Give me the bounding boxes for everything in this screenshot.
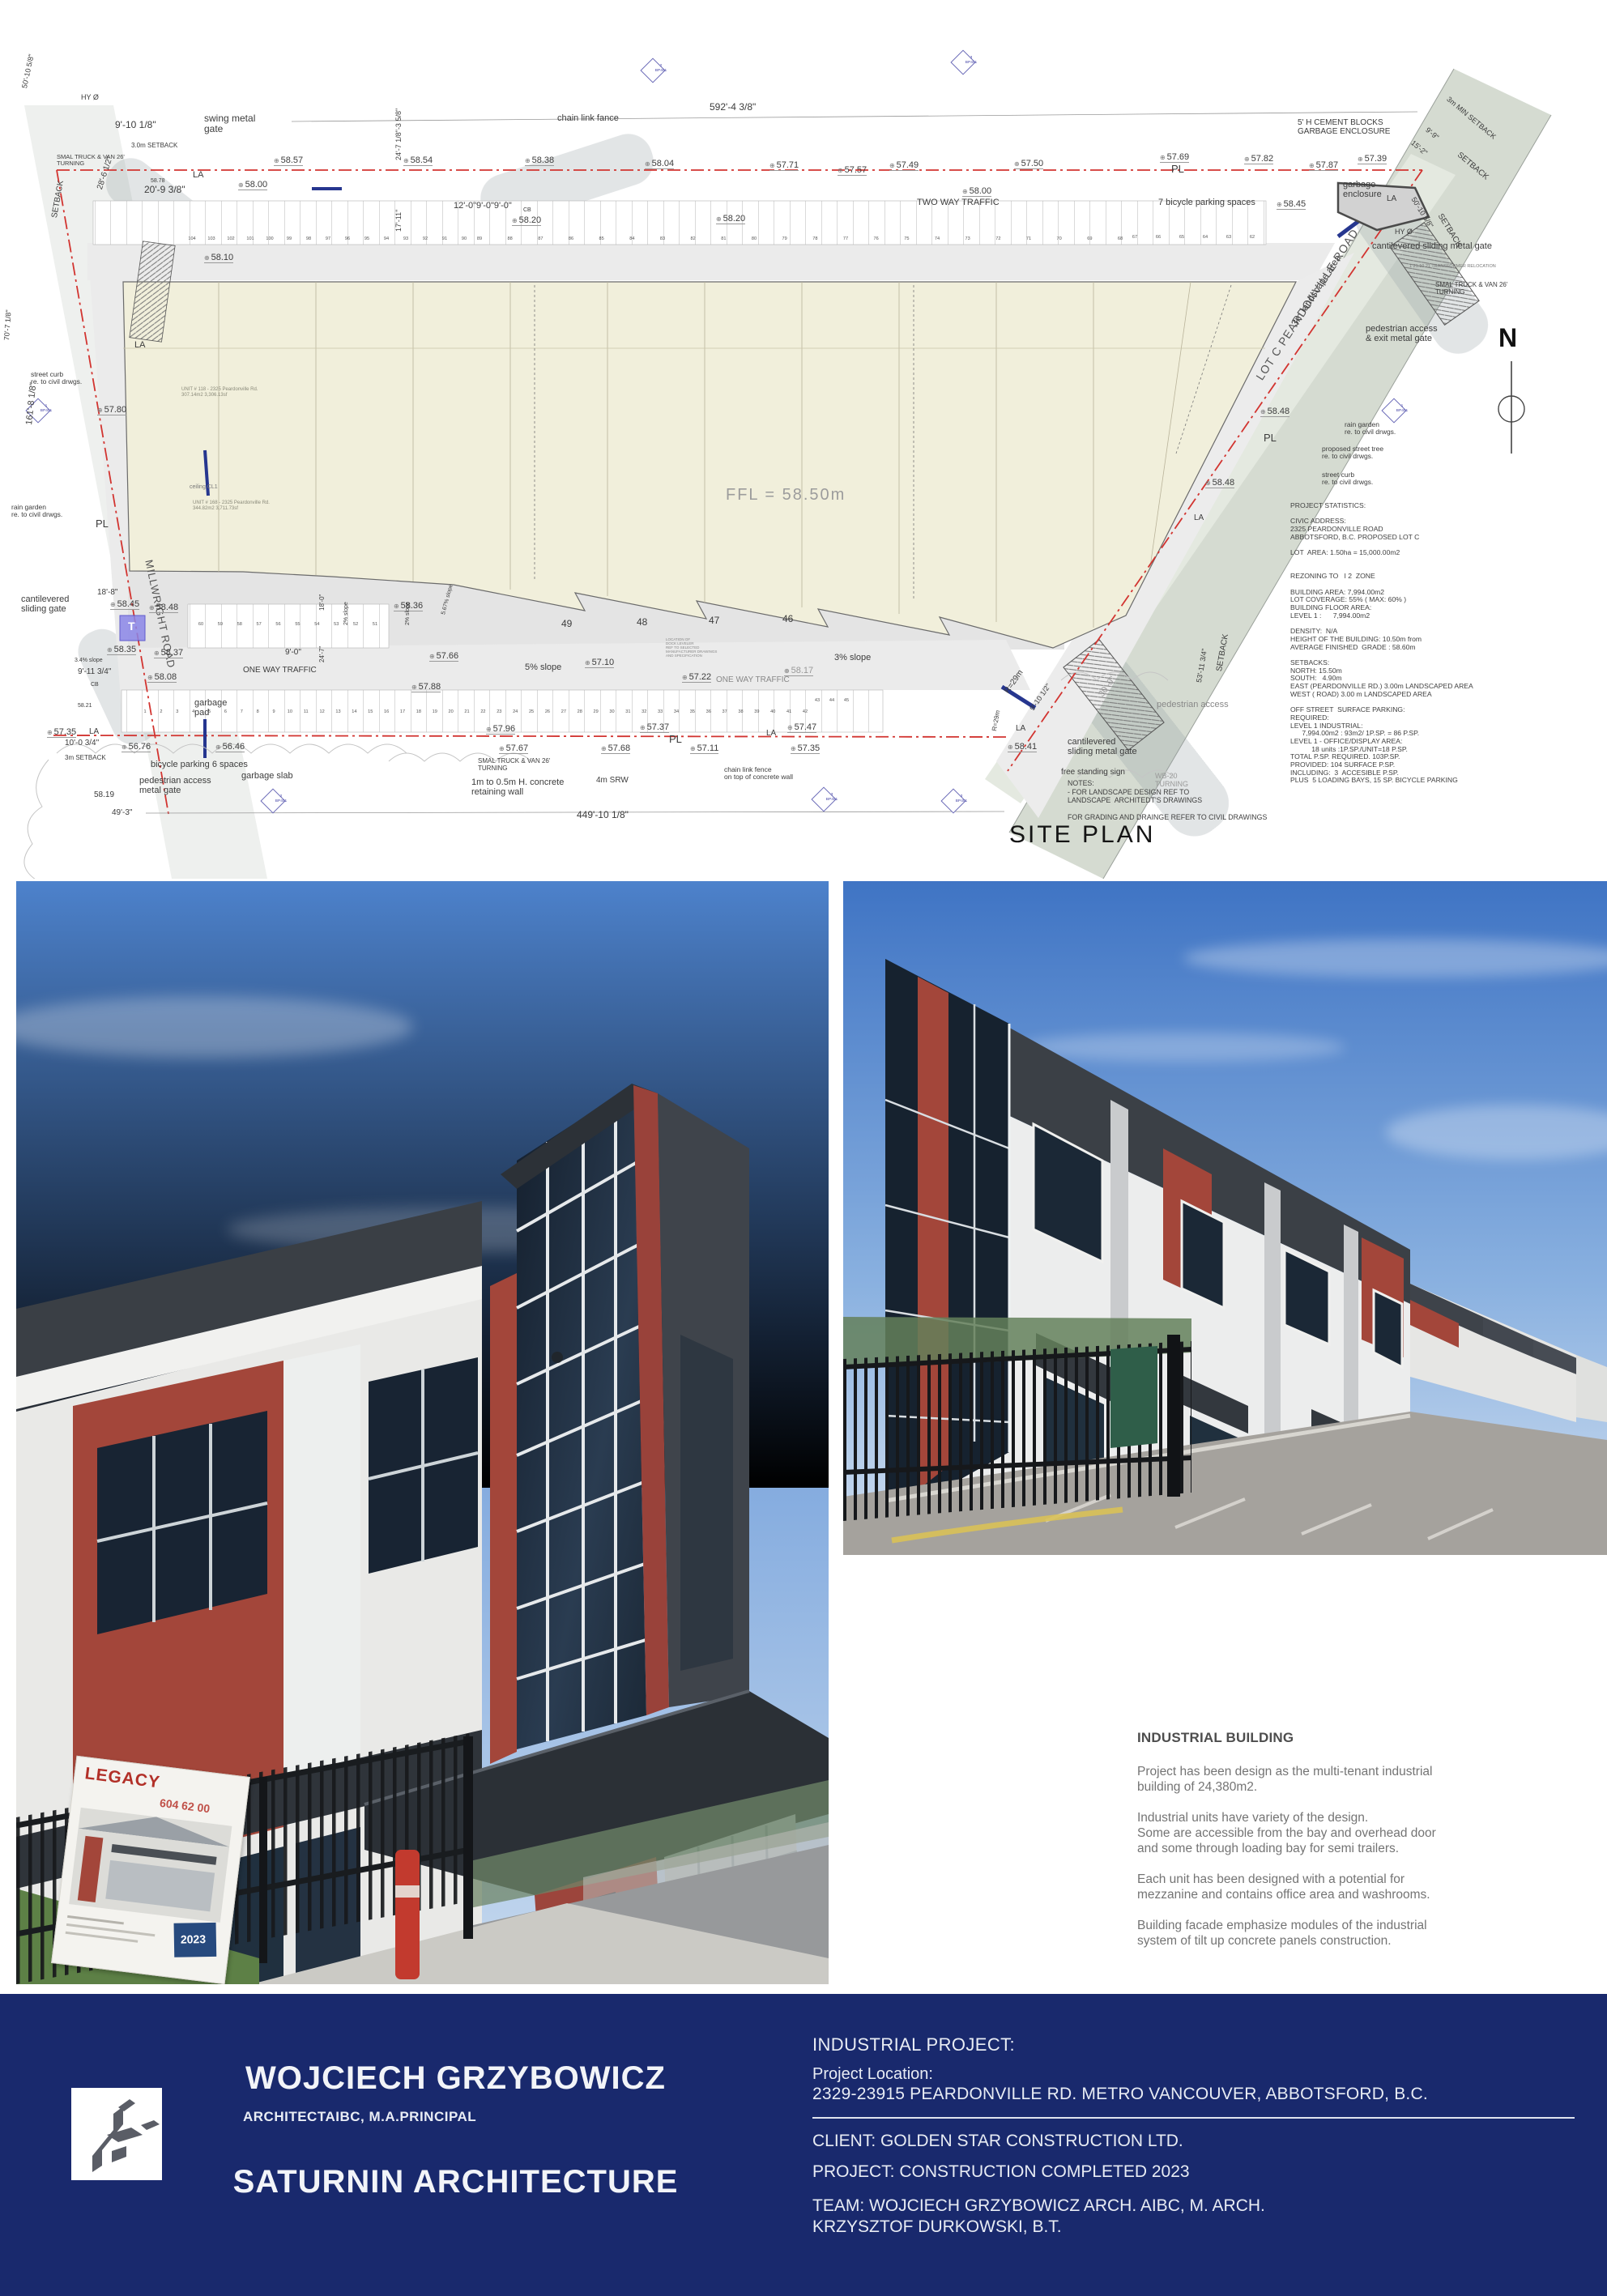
notes-line [1068, 805, 1267, 814]
parking-stall-number: 30 [609, 709, 614, 714]
parking-stall-number: 9 [272, 709, 275, 714]
parking-stall-number: 60 [198, 622, 203, 627]
plan-annotation: 18'-8" [97, 588, 117, 597]
plan-annotation: 58.54 [403, 155, 433, 166]
plan-annotation: ceiling CL1 [190, 484, 218, 491]
plan-annotation: 24'-7 1/8"-3 5/8" [395, 109, 403, 160]
parking-stall-number: 82 [691, 236, 696, 241]
legacy-banner: LEGACY 604 62 00 2023 [51, 1756, 250, 1984]
plan-annotation: garbage enclosure [1343, 180, 1382, 199]
parking-stall-number: 45 [844, 698, 849, 703]
plan-annotation: 57.50 [1014, 159, 1043, 169]
plan-annotation: 58.38 [525, 155, 554, 166]
plan-annotation: 57.57 [838, 165, 867, 176]
plan-annotation: 18'-0" [319, 594, 326, 611]
parking-stall-number: 8 [257, 709, 259, 714]
description-paragraphs: Project has been design as the multi-ten… [1137, 1764, 1550, 1949]
parking-stall-number: 59 [218, 622, 223, 627]
parking-stall-number: 81 [721, 236, 726, 241]
parking-stall-number: 67 [1132, 235, 1137, 240]
parking-stall-number: 52 [353, 622, 358, 627]
plan-annotation: 58.00 [962, 186, 991, 197]
parking-stall-number: 66 [1156, 235, 1161, 240]
parking-stall-number: 19 [433, 709, 437, 714]
plan-annotation: 57.35 [47, 727, 76, 738]
plan-annotation: 58.35 [107, 645, 136, 655]
plan-annotation: pedestrian access & exit metal gate [1366, 324, 1438, 343]
parking-stall-number: 18 [416, 709, 421, 714]
footer-project-line: PROJECT: CONSTRUCTION COMPLETED 2023 [812, 2162, 1190, 2182]
plan-annotation: 58.20 [512, 215, 541, 226]
footer-location-label: Project Location: [812, 2065, 933, 2084]
parking-stall-number: 65 [1179, 235, 1184, 240]
plan-annotation: 57.39 [1358, 154, 1387, 164]
plan-annotation: pedestrian access [1157, 700, 1229, 709]
parking-stall-number: 100 [266, 236, 273, 241]
notes-line: NOTES: [1068, 779, 1267, 788]
plan-annotation: 57.88 [411, 682, 441, 692]
footer-team-line1: TEAM: WOJCIECH GRZYBOWICZ ARCH. AIBC, M.… [812, 2196, 1265, 2216]
plan-annotation: 57.67 [499, 743, 528, 754]
parking-stall-number: 14 [352, 709, 356, 714]
plan-annotation: 46 [782, 614, 793, 624]
plan-annotation: 1m to 0.5m H. concrete retaining wall [471, 777, 564, 797]
plan-annotation: 58.21 [78, 703, 92, 709]
plan-annotation: LOCATION OF DOCK LEVELER REF TO SELECTED… [666, 638, 717, 658]
parking-stall-number: 12 [320, 709, 325, 714]
parking-stall-number: 58 [237, 622, 242, 627]
plan-annotation: 49'-3" [112, 808, 132, 817]
parking-stall-number: 57 [257, 622, 262, 627]
plan-annotation: cantilevered sliding metal gate [1068, 737, 1137, 756]
photo-building-row [843, 881, 1607, 1555]
parking-stall-number: 34 [674, 709, 679, 714]
parking-stall-number: 44 [829, 698, 834, 703]
parking-stall-number: 40 [770, 709, 775, 714]
drawing-reference-label: 3 BP401 [957, 56, 985, 66]
parking-stall-number: 23 [497, 709, 501, 714]
parking-stall-number: 33 [658, 709, 663, 714]
parking-stall-number: 3 [176, 709, 178, 714]
plan-annotation: 57.68 [601, 743, 630, 754]
plan-annotation: CB [523, 207, 531, 214]
plan-annotation: CB [91, 682, 99, 688]
banner-phone: 604 62 00 [159, 1796, 211, 1815]
plan-annotation: 58.04 [645, 159, 674, 169]
parking-stall-number: 2 [160, 709, 162, 714]
plan-annotation: pedestrian access metal gate [139, 776, 211, 795]
plan-annotation: rain garden re. to civil drwgs. [1345, 421, 1396, 437]
notes-line: FOR GRADING AND DRAINGE REFER TO CIVIL D… [1068, 813, 1267, 822]
statistics-line: PLUS 5 LOADING BAYS, 15 SP. BICYCLE PARK… [1290, 777, 1473, 785]
plan-annotation: 7 bicycle parking spaces [1158, 198, 1255, 207]
plan-annotation: rain garden re. to civil drwgs. [11, 504, 62, 519]
plan-annotation: 57.82 [1244, 154, 1273, 164]
drawing-reference-label: 2 BP401 [647, 64, 675, 74]
plan-annotation: PL [96, 518, 109, 530]
parking-stall-number: 80 [752, 236, 757, 241]
plan-annotation: SMAL TRUCK & VAN 26' TURNING [57, 154, 125, 168]
parking-stall-number: 54 [314, 622, 319, 627]
statistics-line: ABBOTSFORD, B.C. PROPOSED LOT C [1290, 534, 1473, 542]
statistics-line: AVERAGE FINISHED GRADE : 58.60m [1290, 644, 1473, 652]
parking-stall-number: 93 [403, 236, 408, 241]
plan-annotation: 3m SETBACK [65, 755, 106, 762]
parking-stall-number: 99 [287, 236, 292, 241]
plan-annotation: ONE WAY TRAFFIC [716, 675, 790, 684]
plan-annotation: 9'-10 1/8" [115, 120, 156, 130]
footer-location-value: 2329-23915 PEARDONVILLE RD. METRO VANCOU… [812, 2085, 1428, 2104]
plan-annotation: 57.35 [791, 743, 820, 754]
drawing-reference-label: 3 BP401 [818, 793, 846, 803]
plan-annotation: 17'-11" [395, 210, 403, 232]
statistics-line: LEVEL 1 : 7,994.00m2 [1290, 612, 1473, 620]
plan-annotation: 57.10 [585, 658, 614, 668]
parking-stall-number: 73 [965, 236, 970, 241]
architect-title: ARCHITECTAIBC, M.A.PRINCIPAL [243, 2109, 476, 2125]
plan-annotation: 58.48 [149, 603, 178, 613]
parking-stall-number: 39 [754, 709, 759, 714]
statistics-line: REZONING TO I 2 ZONE [1290, 573, 1473, 581]
parking-stall-number: 53 [334, 622, 339, 627]
statistics-line: LOT AREA: 1.50ha = 15,000.00m2 [1290, 549, 1473, 557]
plan-annotation: 58.00 [238, 180, 267, 190]
red-bollard [395, 1850, 420, 1979]
photo-right-art [843, 881, 1607, 1555]
parking-stall-number: 92 [423, 236, 428, 241]
north-arrow [1498, 361, 1524, 454]
plan-annotation: 57.47 [787, 722, 816, 733]
parking-stall-number: 70 [1057, 236, 1062, 241]
drawing-reference-label: 1 BP401 [32, 404, 60, 414]
plan-annotation: proposed street tree re. to civil drwgs. [1322, 445, 1383, 461]
plan-annotation: 58.17 [784, 666, 813, 676]
plan-annotation: 5' H CEMENT BLOCKS GARBAGE ENCLOSURE [1298, 118, 1390, 136]
plan-annotation: 58.10 [204, 253, 233, 263]
parking-stall-number: 102 [227, 236, 234, 241]
description-paragraph: Each unit has been designed with a poten… [1137, 1872, 1550, 1902]
notes-line: LANDSCAPE ARCHITEDT'S DRAWINGS [1068, 796, 1267, 805]
parking-stall-number: 41 [786, 709, 791, 714]
plan-annotation: 56.76 [121, 742, 151, 752]
description-paragraph: Industrial units have variety of the des… [1137, 1810, 1550, 1856]
footer-project-type: INDUSTRIAL PROJECT: [812, 2034, 1015, 2055]
plan-annotation: PL [669, 734, 682, 745]
plan-annotation: 3% slope [834, 653, 871, 662]
plan-annotation: 58.45 [110, 599, 139, 610]
parking-stall-number: 31 [625, 709, 630, 714]
parking-stall-number: 43 [815, 698, 820, 703]
parking-stall-number: 95 [364, 236, 369, 241]
plan-annotation: 58.48 [1205, 478, 1234, 488]
plan-annotation: LA [1016, 724, 1025, 733]
plan-annotation: 9'-11 3/4" [78, 667, 111, 676]
parking-stall-number: 32 [642, 709, 646, 714]
architect-name: WOJCIECH GRZYBOWICZ [113, 2060, 798, 2097]
parking-stall-number: 84 [629, 236, 634, 241]
plan-annotation: 47 [709, 616, 719, 626]
parking-stall-number: 56 [275, 622, 280, 627]
plan-annotation: LA [193, 170, 203, 180]
plan-annotation: FFL = 58.50m [726, 486, 846, 504]
footer-band: WOJCIECH GRZYBOWICZ ARCHITECTAIBC, M.A.P… [0, 1994, 1607, 2296]
plan-annotation: 57.11 [690, 743, 718, 754]
parking-stall-number: 83 [660, 236, 665, 241]
plan-annotation: 57.69 [1160, 152, 1189, 163]
plan-annotation: garbage pad [194, 698, 227, 718]
parking-stall-number: 79 [782, 236, 787, 241]
plan-annotation: cantilevered sliding gate [21, 594, 69, 614]
plan-annotation: 57.37 [640, 722, 669, 733]
plan-annotation: 58.41 [1008, 742, 1037, 752]
site-plan-section: HY Ø50'-10 5/8"9'-10 1/8"swing metal gat… [0, 0, 1607, 879]
parking-stall-number: 76 [874, 236, 879, 241]
plan-annotation: 592'-4 3/8" [710, 102, 756, 113]
parking-stall-number: 75 [904, 236, 909, 241]
plan-annotation: N [1498, 324, 1517, 352]
parking-stall-number: 72 [995, 236, 1000, 241]
plan-annotation: free standing sign [1061, 768, 1125, 777]
drawing-reference-label: 1 BP401 [1388, 404, 1416, 414]
parking-stall-number: 21 [464, 709, 469, 714]
plan-annotation: 57.49 [889, 160, 919, 171]
parking-stall-number: 69 [1087, 236, 1092, 241]
banner-image [69, 1808, 232, 1923]
drawing-reference-label: 2 BP401 [267, 794, 295, 804]
footer-team-line2: KRZYSZTOF DURKOWSKI, B.T. [812, 2217, 1062, 2237]
drawing-reference-label: 3 BP401 [948, 794, 975, 804]
plan-annotation: PL [1264, 432, 1277, 444]
plan-annotation: LA [134, 340, 145, 350]
plan-annotation: 2% slope [343, 602, 350, 625]
plan-annotation: 12'-0"9'-0"9'-0" [454, 201, 512, 211]
parking-stall-number: 11 [304, 709, 309, 714]
project-description: INDUSTRIAL BUILDING Project has been des… [1137, 1730, 1550, 1964]
plan-annotation: 58.45 [1277, 199, 1306, 210]
plan-annotation: 57.96 [486, 724, 515, 735]
description-title: INDUSTRIAL BUILDING [1137, 1730, 1550, 1746]
parking-stall-number: 38 [738, 709, 743, 714]
plan-annotation: street curb re. to civil drwgs. [1322, 471, 1373, 487]
plan-annotation: 3.4% slope [75, 658, 103, 664]
project-statistics-block: PROJECT STATISTICS:CIVIC ADDRESS:2325 PE… [1290, 502, 1473, 785]
parking-stall-number: 17 [400, 709, 405, 714]
plan-notes-block: NOTES:- FOR LANDSCAPE DESIGN REF TOLANDS… [1068, 779, 1267, 822]
footer-client-line: CLIENT: GOLDEN STAR CONSTRUCTION LTD. [812, 2132, 1183, 2151]
plan-annotation: 20'-9 3/8" [144, 185, 185, 195]
parking-stall-number: 98 [306, 236, 311, 241]
parking-stall-number: 15 [368, 709, 373, 714]
plan-annotation: UNIT # 168 - 2325 Peardonville Rd. 344.8… [193, 501, 270, 511]
plan-annotation: 3.0m SETBACK [131, 143, 177, 150]
parking-stall-number: 91 [442, 236, 447, 241]
plan-annotation: bicycle parking 6 spaces [151, 760, 248, 769]
plan-annotation: 58.37 [154, 648, 183, 658]
plan-annotation: LA [89, 727, 99, 736]
plan-annotation: 58.08 [147, 672, 177, 683]
plan-annotation: 58.20 [716, 214, 745, 224]
parking-stall-number: 20 [449, 709, 454, 714]
parking-stall-number: 24 [513, 709, 518, 714]
parking-stall-number: 22 [480, 709, 485, 714]
plan-annotation: 1 21.10.21 TRANSFORMER RELOCATION [1409, 264, 1496, 269]
statistics-line [1290, 557, 1473, 565]
parking-stall-number: 37 [722, 709, 727, 714]
footer-divider [812, 2117, 1575, 2119]
parking-stall-number: 42 [803, 709, 808, 714]
plan-annotation: 57.87 [1309, 160, 1338, 171]
parking-stall-number: 103 [207, 236, 215, 241]
parking-stall-number: 68 [1118, 236, 1123, 241]
plan-annotation: T [128, 620, 135, 633]
parking-stall-number: 87 [538, 236, 543, 241]
plan-annotation: 58.48 [1260, 407, 1289, 417]
plan-annotation: chain link fence on top of concrete wall [724, 766, 793, 782]
plan-annotation: 57.22 [682, 672, 711, 683]
banner-brand: LEGACY [83, 1764, 161, 1792]
description-paragraph: Project has been design as the multi-ten… [1137, 1764, 1550, 1795]
photo-building-corner: LEGACY 604 62 00 2023 [16, 881, 829, 1984]
statistics-line: WEST ( ROAD) 3.00 m LANDSCAPED AREA [1290, 691, 1473, 699]
plan-annotation: LA [1194, 513, 1204, 522]
plan-annotation: street curb re. to civil drwgs. [31, 371, 82, 386]
plan-annotation: 56.46 [215, 742, 245, 752]
description-paragraph: Building facade emphasize modules of the… [1137, 1918, 1550, 1949]
portfolio-board-root: HY Ø50'-10 5/8"9'-10 1/8"swing metal gat… [0, 0, 1607, 2296]
parking-stall-number: 71 [1026, 236, 1031, 241]
parking-stall-number: 77 [843, 236, 848, 241]
plan-annotation: SMAL TRUCK & VAN 26' TURNING [478, 758, 550, 773]
parking-stall-number: 1 [143, 709, 146, 714]
plan-annotation: ONE WAY TRAFFIC [243, 666, 317, 675]
plan-annotation: 449'-10 1/8" [577, 810, 629, 820]
parking-stall-number: 63 [1226, 235, 1231, 240]
plan-annotation: TWO WAY TRAFFIC [917, 198, 1000, 207]
parking-stall-number: 10 [288, 709, 292, 714]
parking-stall-number: 78 [812, 236, 817, 241]
parking-stall-number: 55 [295, 622, 300, 627]
parking-stall-number: 96 [345, 236, 350, 241]
plan-annotation: 4m SRW [596, 776, 629, 785]
parking-stall-number: 62 [1250, 235, 1255, 240]
plan-annotation: PL [1171, 164, 1184, 175]
parking-stall-number: 28 [578, 709, 582, 714]
plan-annotation: garbage slab [241, 771, 293, 781]
plan-annotation: 10'-0 3/4" [65, 739, 99, 748]
parking-stall-number: 74 [935, 236, 940, 241]
plan-annotation: 57.80 [97, 405, 126, 415]
notes-line: - FOR LANDSCAPE DESIGN REF TO [1068, 788, 1267, 797]
plan-annotation: 9'-0" [285, 648, 301, 657]
plan-annotation: 58.19 [94, 790, 114, 799]
plan-annotation: LA [766, 729, 776, 738]
plan-annotation: 58.57 [274, 155, 303, 166]
parking-stall-number: 97 [326, 236, 330, 241]
parking-stall-number: 16 [384, 709, 389, 714]
parking-stall-number: 101 [246, 236, 254, 241]
plan-annotation: HY Ø [1395, 228, 1413, 236]
parking-stall-number: 90 [462, 236, 467, 241]
parking-stall-number: 29 [593, 709, 598, 714]
parking-stall-number: 51 [373, 622, 377, 627]
plan-annotation: 2% slope [405, 602, 411, 625]
plan-annotation: UNIT # 118 - 2325 Peardonville Rd. 307.1… [181, 387, 258, 398]
plan-annotation: 48 [637, 617, 647, 628]
parking-stall-number: 104 [188, 236, 195, 241]
banner-year: 2023 [181, 1932, 206, 1946]
site-plan-title: SITE PLAN [1009, 821, 1155, 849]
parking-stall-number: 25 [529, 709, 534, 714]
plan-annotation: LA [1387, 194, 1396, 203]
parking-stall-number: 89 [477, 236, 482, 241]
plan-annotation: 57.71 [769, 160, 799, 171]
portfolio-board: { "colors": { "footer_navy": "#19296d", … [0, 0, 1607, 2296]
parking-stall-number: 94 [384, 236, 389, 241]
plan-annotation: 58.78 [151, 178, 165, 185]
plan-annotation: SMAL TRUCK & VAN 26' TURNING [1435, 282, 1507, 296]
banner-year-tag: 2023 [174, 1923, 217, 1957]
plan-annotation: 5% slope [525, 662, 561, 672]
studio-name: SATURNIN ARCHITECTURE [113, 2164, 798, 2200]
green-bin [1110, 1346, 1157, 1448]
plan-annotation: HY Ø [81, 94, 99, 102]
plan-annotation: 49 [561, 619, 572, 629]
plan-annotation: 57.66 [429, 651, 458, 662]
parking-stall-number: 26 [545, 709, 550, 714]
plan-annotation: swing metal gate [204, 113, 255, 134]
parking-stall-number: 88 [508, 236, 513, 241]
parking-stall-number: 13 [335, 709, 340, 714]
parking-stall-number: 35 [690, 709, 695, 714]
parking-stall-number: 27 [561, 709, 566, 714]
parking-stall-number: 7 [241, 709, 243, 714]
parking-stall-number: 64 [1203, 235, 1208, 240]
parking-stall-number: 85 [599, 236, 604, 241]
parking-stall-number: 36 [706, 709, 711, 714]
plan-annotation: cantilevered sliding metal gate [1372, 241, 1492, 251]
parking-stall-number: 86 [569, 236, 573, 241]
plan-annotation: chain link fance [557, 113, 619, 123]
plan-annotation: 24'-7" [319, 646, 326, 662]
statistics-line: PROJECT STATISTICS: [1290, 502, 1473, 510]
